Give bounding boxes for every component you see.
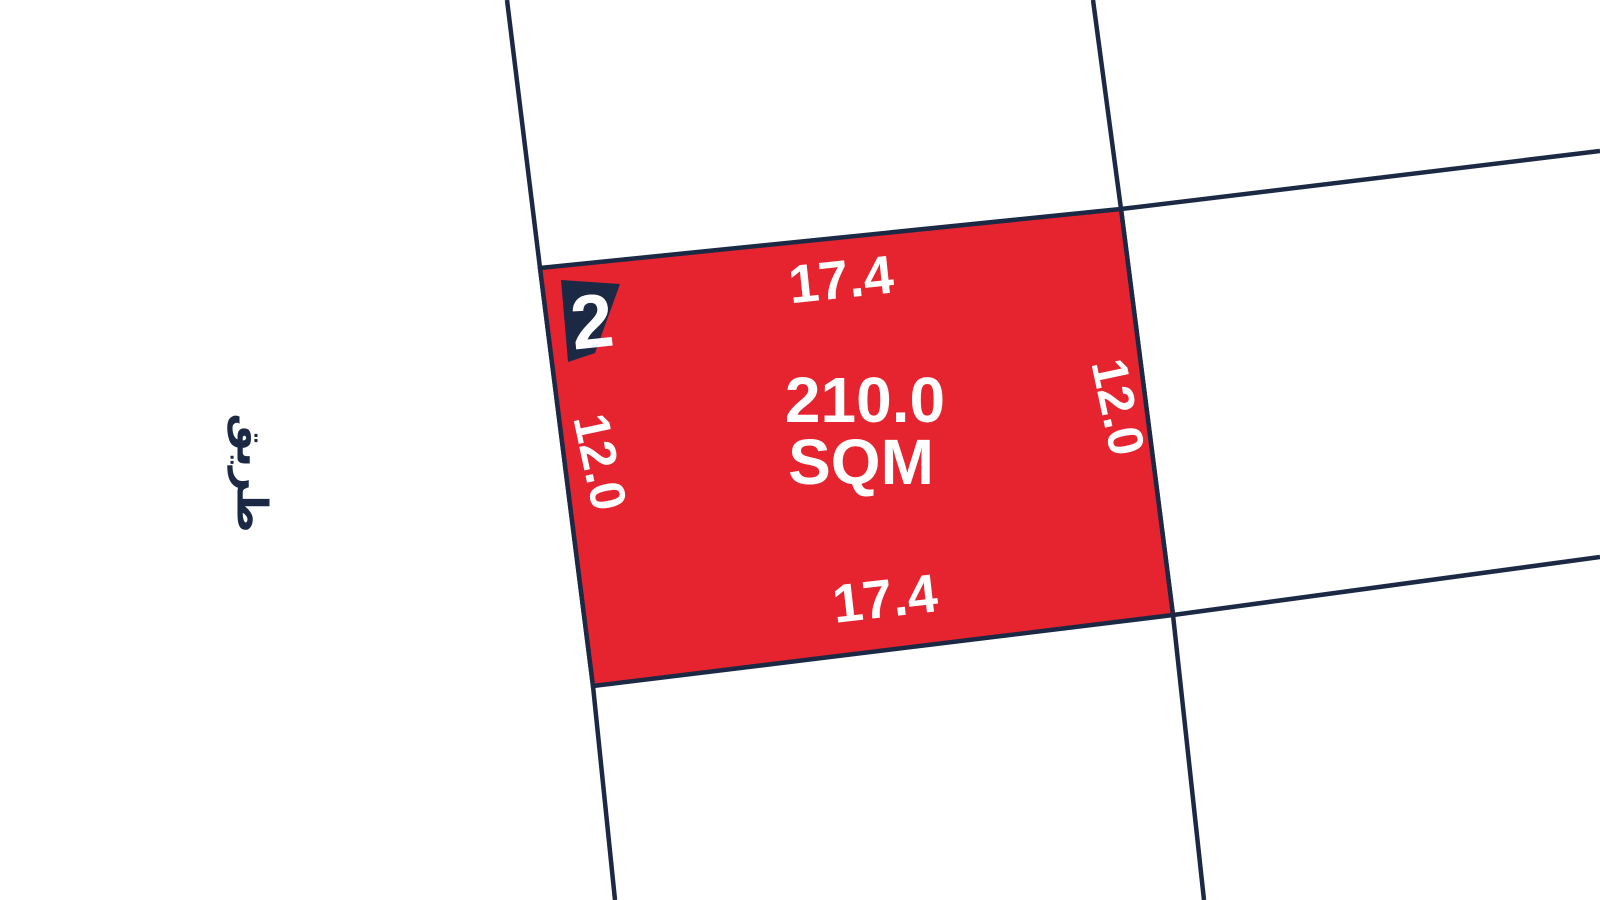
road-label: طريق — [227, 413, 277, 532]
dimension-bottom-label: 17.4 — [829, 563, 940, 635]
cadastral-plot-map: 2 17.4 17.4 12.0 12.0 210.0 SQM طريق — [0, 0, 1600, 900]
parcel-number-label: 2 — [567, 278, 618, 367]
dimension-top-label: 17.4 — [786, 245, 897, 316]
boundary-line-bottom-right — [1173, 557, 1600, 615]
parcel-area-unit: SQM — [788, 426, 934, 498]
boundary-line-top-right — [1121, 151, 1600, 209]
plot-map-canvas: 2 17.4 17.4 12.0 12.0 210.0 SQM طريق — [0, 0, 1600, 900]
